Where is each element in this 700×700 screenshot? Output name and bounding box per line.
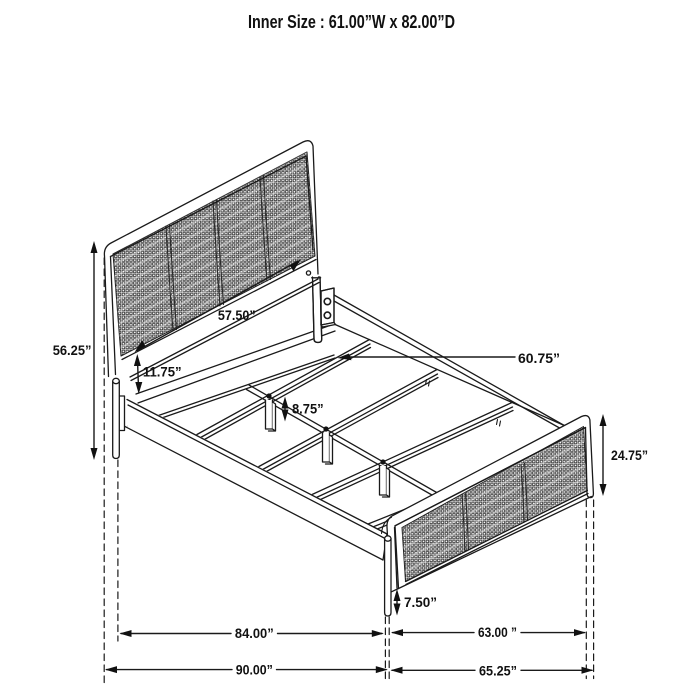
svg-text:60.75”: 60.75” [518, 350, 560, 366]
svg-text:65.25”: 65.25” [479, 663, 517, 679]
svg-text:11.75”: 11.75” [143, 364, 182, 380]
svg-text:7.50”: 7.50” [404, 594, 437, 610]
svg-text:Inner Size : 61.00”W x 82.00”D: Inner Size : 61.00”W x 82.00”D [248, 11, 455, 32]
svg-text:90.00”: 90.00” [236, 661, 273, 677]
svg-text:63.00 ”: 63.00 ” [478, 624, 517, 640]
svg-text:57.50”: 57.50” [218, 307, 256, 323]
svg-text:84.00”: 84.00” [235, 625, 274, 641]
svg-text:56.25”: 56.25” [53, 342, 92, 358]
svg-text:24.75”: 24.75” [611, 447, 648, 463]
svg-text:8.75”: 8.75” [292, 401, 324, 417]
